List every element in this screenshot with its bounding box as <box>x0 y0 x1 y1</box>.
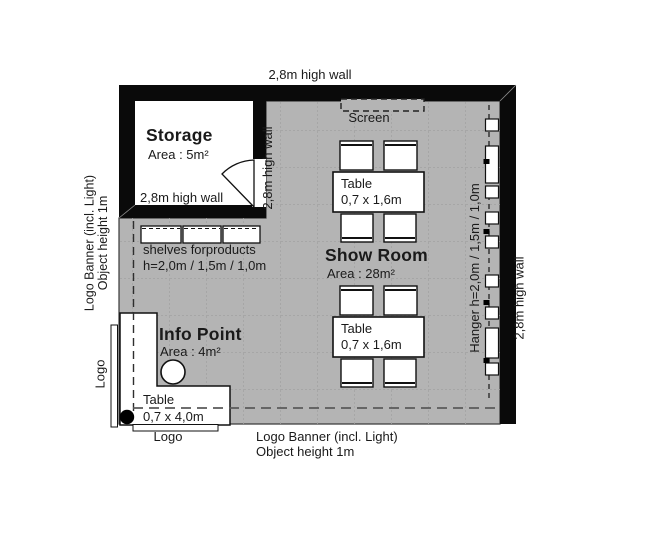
hanger-segment <box>486 328 499 358</box>
floor-plan: Table 0,7 x 1,6m Table 0,7 x 1,6m <box>0 0 657 536</box>
bottom-banner-logo-label: Logo <box>154 429 183 444</box>
info-point-title: Info Point <box>159 324 242 344</box>
storage-title: Storage <box>146 125 213 145</box>
left-banner-label-line2: Object height 1m <box>96 196 110 291</box>
chair <box>341 214 373 242</box>
left-banner-logo-label: Logo <box>93 360 108 389</box>
shelves-label-line1: shelves forproducts <box>143 242 256 257</box>
hanger-label: Hanger h=2,0m / 1,5m / 1,0m <box>467 183 482 352</box>
top-wall <box>119 85 516 101</box>
chair <box>341 359 373 387</box>
table-1-size: 0,7 x 1,6m <box>341 192 402 207</box>
chair <box>384 359 416 387</box>
hanger-bracket <box>484 229 490 234</box>
hanger-segment <box>486 119 499 131</box>
right-wall-label: 2,8m high wall <box>512 256 527 339</box>
storage-side-wall-label: 2,8m high wall <box>260 126 275 209</box>
hanger-segment <box>486 307 499 319</box>
corner-pole <box>120 410 134 424</box>
info-point-stool <box>161 360 185 384</box>
left-banner-label-line1: Logo Banner (incl. Light) <box>83 175 97 311</box>
hanger-segment <box>486 236 499 248</box>
hanger-segment <box>486 146 499 183</box>
hanger-segment <box>486 363 499 375</box>
top-wall-label: 2,8m high wall <box>268 67 351 82</box>
shelf <box>141 226 181 243</box>
logo-banner-left-strip <box>111 325 118 427</box>
hanger-segment <box>486 275 499 287</box>
table-1-label: Table <box>341 176 372 191</box>
showroom-title: Show Room <box>325 245 428 265</box>
hanger-bracket <box>484 300 490 305</box>
chair <box>384 286 417 315</box>
chair <box>384 141 417 170</box>
info-table-label: Table <box>143 392 174 407</box>
screen-label: Screen <box>348 110 389 125</box>
showroom-area-label: Area : 28m² <box>327 266 396 281</box>
chair <box>340 141 373 170</box>
info-point-area-label: Area : 4m² <box>160 344 221 359</box>
bottom-banner-label-line1: Logo Banner (incl. Light) <box>256 429 398 444</box>
right-wall <box>500 85 516 424</box>
storage-bottom-wall-label: 2,8m high wall <box>140 190 223 205</box>
hanger-segment <box>486 212 499 224</box>
floor-plan-page: Table 0,7 x 1,6m Table 0,7 x 1,6m <box>0 0 657 536</box>
chair <box>340 286 373 315</box>
bottom-banner-label-line2: Object height 1m <box>256 444 354 459</box>
product-shelves <box>141 226 260 243</box>
hanger-bracket <box>484 159 490 164</box>
hanger-bracket <box>484 358 490 363</box>
table-2-label: Table <box>341 321 372 336</box>
info-table-size: 0,7 x 4,0m <box>143 409 204 424</box>
storage-area-label: Area : 5m² <box>148 147 209 162</box>
table-2-size: 0,7 x 1,6m <box>341 337 402 352</box>
shelves-label-line2: h=2,0m / 1,5m / 1,0m <box>143 258 266 273</box>
chair <box>384 214 416 242</box>
hanger-segment <box>486 186 499 198</box>
